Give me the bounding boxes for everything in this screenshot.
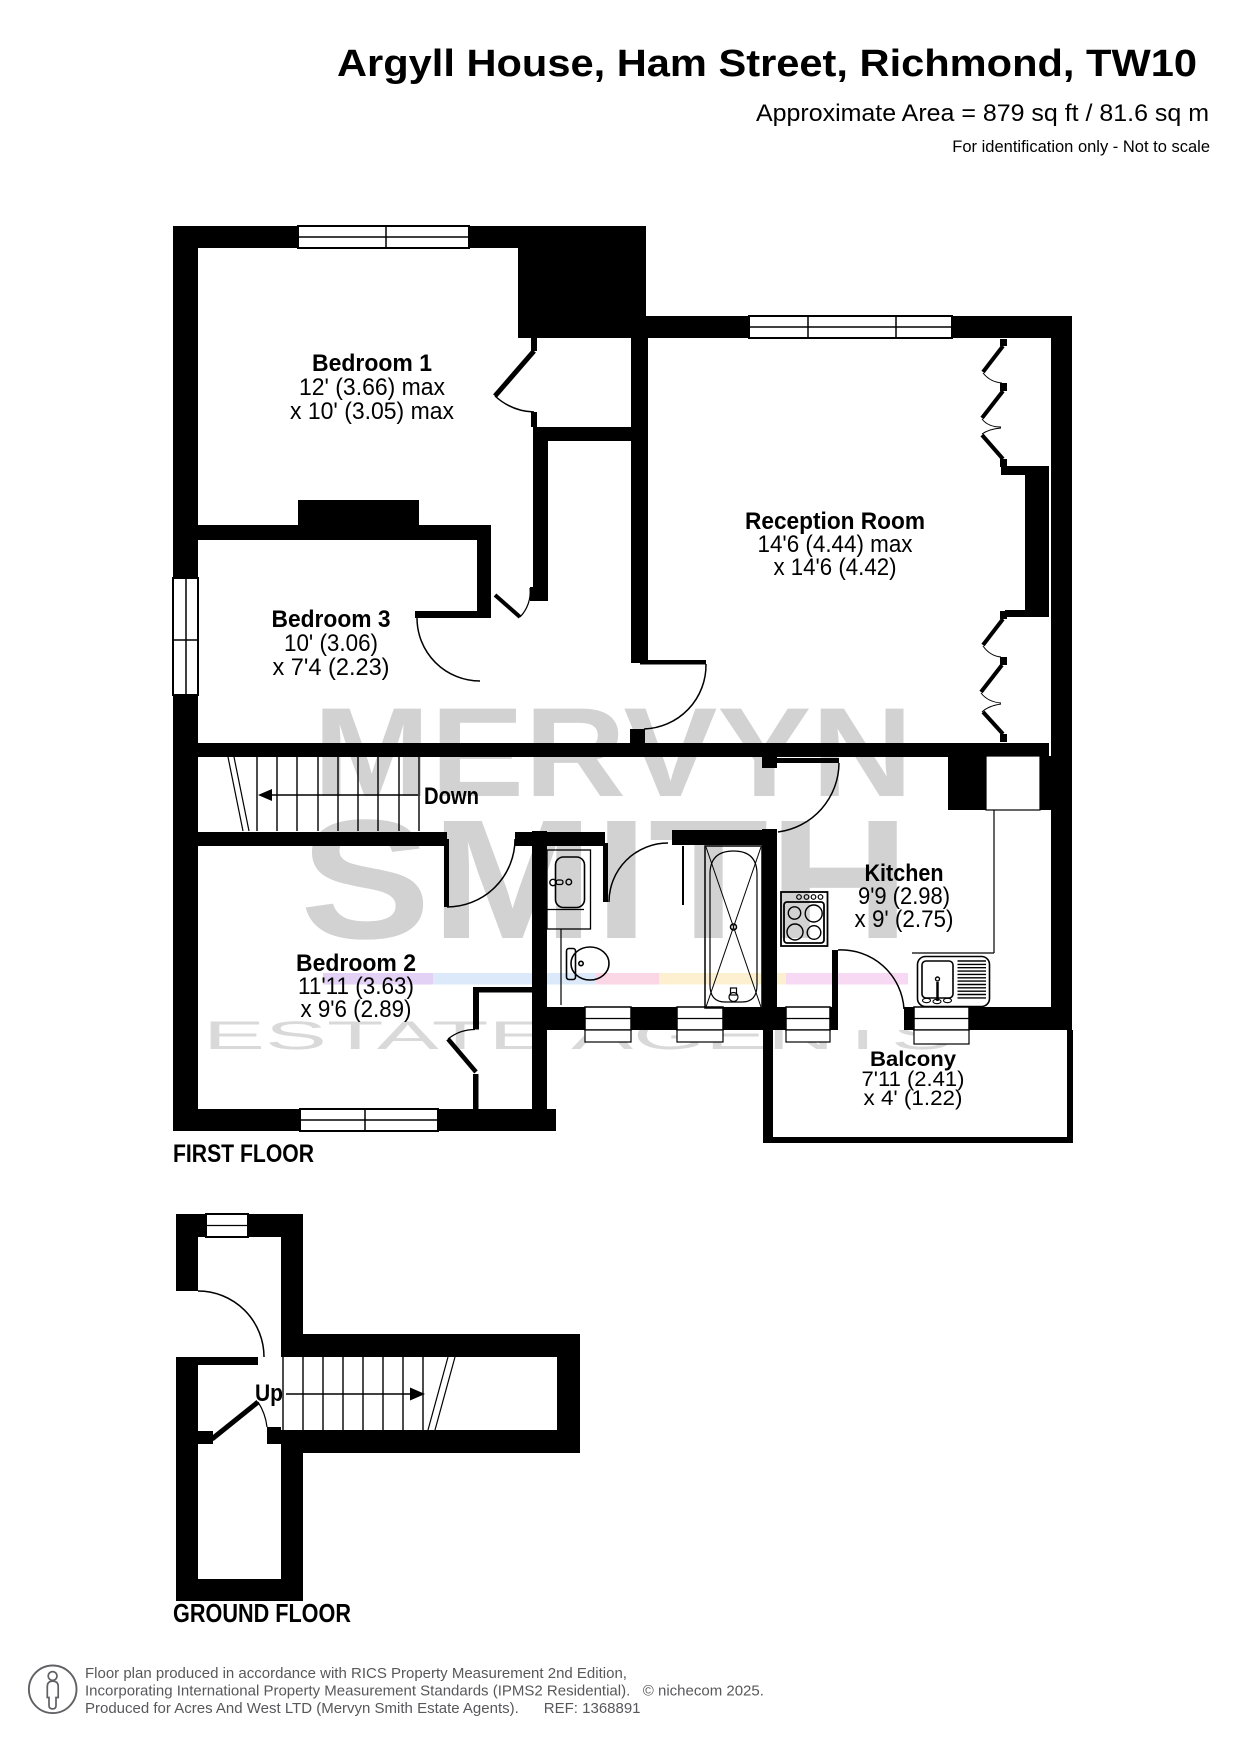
svg-text:x 9'6 (2.89): x 9'6 (2.89) xyxy=(301,996,412,1023)
svg-text:x 7'4 (2.23): x 7'4 (2.23) xyxy=(273,654,390,681)
svg-text:Down: Down xyxy=(424,783,479,810)
svg-text:Floor plan produced in accorda: Floor plan produced in accordance with R… xyxy=(85,1665,627,1682)
svg-text:Argyll House, Ham Street, Rich: Argyll House, Ham Street, Richmond, TW10 xyxy=(337,43,1197,85)
svg-text:Bedroom 3: Bedroom 3 xyxy=(272,606,391,633)
svg-text:Produced for Acres And West LT: Produced for Acres And West LTD (Mervyn … xyxy=(85,1700,641,1717)
svg-text:For identification only - Not: For identification only - Not to scale xyxy=(952,138,1210,156)
svg-text:x 9' (2.75): x 9' (2.75) xyxy=(855,906,954,933)
svg-text:x 14'6 (4.42): x 14'6 (4.42) xyxy=(774,554,897,581)
svg-text:Bedroom 1: Bedroom 1 xyxy=(312,350,432,377)
svg-text:FIRST FLOOR: FIRST FLOOR xyxy=(173,1140,314,1168)
svg-text:Incorporating International Pr: Incorporating International Property Mea… xyxy=(85,1683,764,1700)
svg-text:10' (3.06): 10' (3.06) xyxy=(284,630,378,657)
svg-text:12' (3.66) max: 12' (3.66) max xyxy=(299,374,445,401)
svg-text:GROUND FLOOR: GROUND FLOOR xyxy=(173,1598,351,1628)
svg-text:Approximate Area = 879 sq ft /: Approximate Area = 879 sq ft / 81.6 sq m xyxy=(756,100,1209,127)
svg-text:x 10' (3.05) max: x 10' (3.05) max xyxy=(290,398,454,425)
svg-text:Up: Up xyxy=(255,1380,283,1407)
svg-text:x 4' (1.22): x 4' (1.22) xyxy=(864,1087,963,1110)
